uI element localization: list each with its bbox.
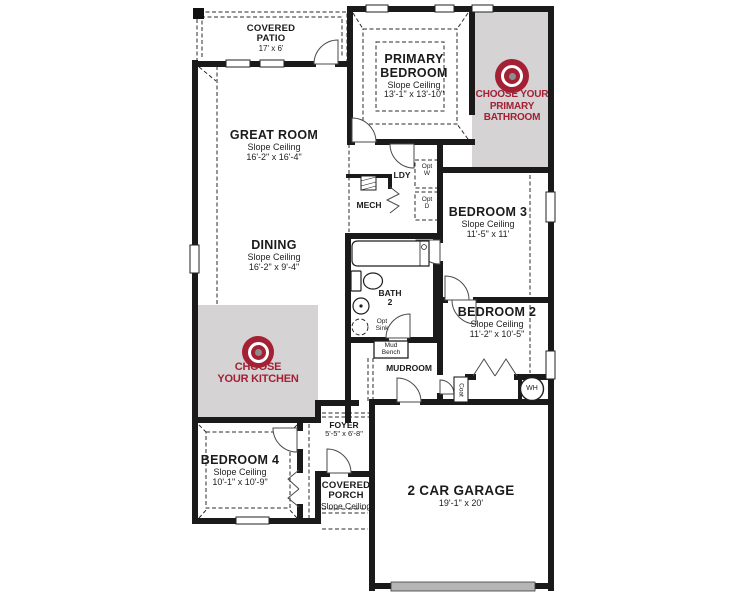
opt-washer-line: W [422,170,432,177]
bathtub-faucet [422,245,427,250]
mech-label: MECH [356,201,381,210]
room-name: BEDROOM [380,67,447,81]
room-dims: 17' x 6' [247,45,295,54]
room-name: GREAT ROOM [230,129,318,143]
covered-porch-label: COVERED PORCH Slope Ceiling [321,481,371,511]
badge-line: CHOOSE [217,361,298,373]
opt-sink-line: Sink [376,325,389,332]
bedroom3-door [445,276,469,300]
patio-post [193,8,204,19]
wh-line: WH [526,385,538,393]
room-name: PRIMARY [380,53,447,67]
primary-bedroom-door [352,118,376,142]
badge-text: CHOOSE YOUR PRIMARY BATHROOM [476,89,549,124]
mud-bench-line: Bench [382,349,400,356]
floorplan-linework [0,0,750,600]
window [260,60,284,67]
mech-accordion-door [387,187,399,213]
badge-line: CHOOSE YOUR [476,89,549,101]
bedroom3-label: BEDROOM 3 Slope Ceiling 11'-5" x 11' [449,206,527,240]
window [366,5,388,12]
room-name: LDY [394,171,411,180]
sink-drain [359,304,362,307]
window [435,5,454,12]
laundry-door [390,144,414,168]
room-name: DINING [247,239,300,253]
laundry-label: LDY [394,171,411,180]
bedroom4-label: BEDROOM 4 Slope Ceiling 10'-1" x 10'-9" [201,454,279,488]
patio-door [314,40,338,64]
garage-label: 2 CAR GARAGE 19'-1" x 20' [407,484,514,509]
mud-bench-label: Mud Bench [382,342,400,356]
room-dims: 16'-2" x 9'-4" [247,263,300,273]
bath2-door [386,314,410,338]
room-name: 2 CAR GARAGE [407,484,514,499]
window [546,192,555,222]
mud-bench-line: Mud [382,342,400,349]
room-dims: 11'-2" x 10'-5" [458,330,536,340]
badge-line: YOUR KITCHEN [217,373,298,385]
room-sub: Slope Ceiling [321,502,371,511]
bullseye-icon [495,59,529,93]
coat-closet-label: Coat [457,383,464,397]
bedroom2-closet-bifold [473,359,517,376]
room-name: 2 [379,298,402,307]
opt-sink-label: Opt Sink [376,318,389,332]
mudroom-label: MUDROOM [386,364,432,373]
opt-washer-label: Opt W [422,163,432,177]
badge-line: PRIMARY [476,101,549,113]
bedroom4-door [273,428,297,452]
window [226,60,250,67]
bathtub [352,241,429,266]
covered-patio-label: COVERED PATIO 17' x 6' [247,24,295,54]
window [546,351,555,379]
room-name: BEDROOM 3 [449,206,527,220]
room-dims: 19'-1" x 20' [407,499,514,509]
opt-dryer-line: D [422,203,432,210]
badge-line: BATHROOM [476,112,549,124]
room-name: BEDROOM 2 [458,306,536,320]
water-heater-label: WH [526,385,538,393]
coat-hall-door [440,380,454,394]
opt-washer-line: Opt [422,163,432,170]
badge-text: CHOOSE YOUR KITCHEN [217,361,298,386]
foyer-label: FOYER 5'-5" x 6'-8" [325,421,363,439]
room-name: BEDROOM 4 [201,454,279,468]
room-dims: 13'-1" x 13'-10" [380,90,447,100]
room-dims: 16'-2" x 16'-4" [230,153,318,163]
room-dims: 11'-5" x 11' [449,230,527,240]
primary-bedroom-label: PRIMARY BEDROOM Slope Ceiling 13'-1" x 1… [380,53,447,100]
garage-door [391,582,535,591]
room-dims: 10'-1" x 10'-9" [201,478,279,488]
opt-dryer-label: Opt D [422,196,432,210]
toilet-tank [351,271,361,291]
room-name: MUDROOM [386,364,432,373]
great-room-label: GREAT ROOM Slope Ceiling 16'-2" x 16'-4" [230,129,318,163]
dining-label: DINING Slope Ceiling 16'-2" x 9'-4" [247,239,300,273]
optional-sink-fixture [352,319,368,335]
room-name: MECH [356,201,381,210]
garage-entry-door [397,378,421,402]
window [190,245,199,273]
room-dims: 5'-5" x 6'-8" [325,430,363,438]
bedroom2-label: BEDROOM 2 Slope Ceiling 11'-2" x 10'-5" [458,306,536,340]
opt-dryer-line: Opt [422,196,432,203]
window [236,517,269,524]
toilet-bowl [364,273,383,289]
window [472,5,493,12]
floorplan-page: COVERED PATIO 17' x 6' PRIMARY BEDROOM S… [0,0,750,600]
coat-line: Coat [457,383,464,397]
bath2-label: BATH 2 [379,289,402,308]
front-door [327,449,351,473]
opt-sink-line: Opt [376,318,389,325]
